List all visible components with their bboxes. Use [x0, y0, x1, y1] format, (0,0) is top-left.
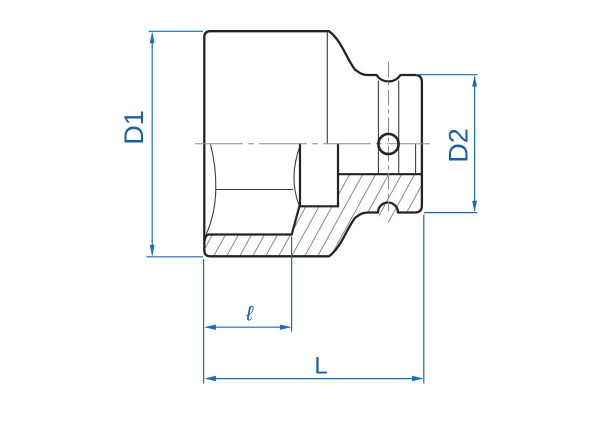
svg-text:L: L: [314, 353, 327, 380]
svg-text:D2: D2: [444, 128, 474, 163]
svg-text:ℓ: ℓ: [245, 303, 254, 326]
svg-text:D1: D1: [119, 110, 149, 145]
